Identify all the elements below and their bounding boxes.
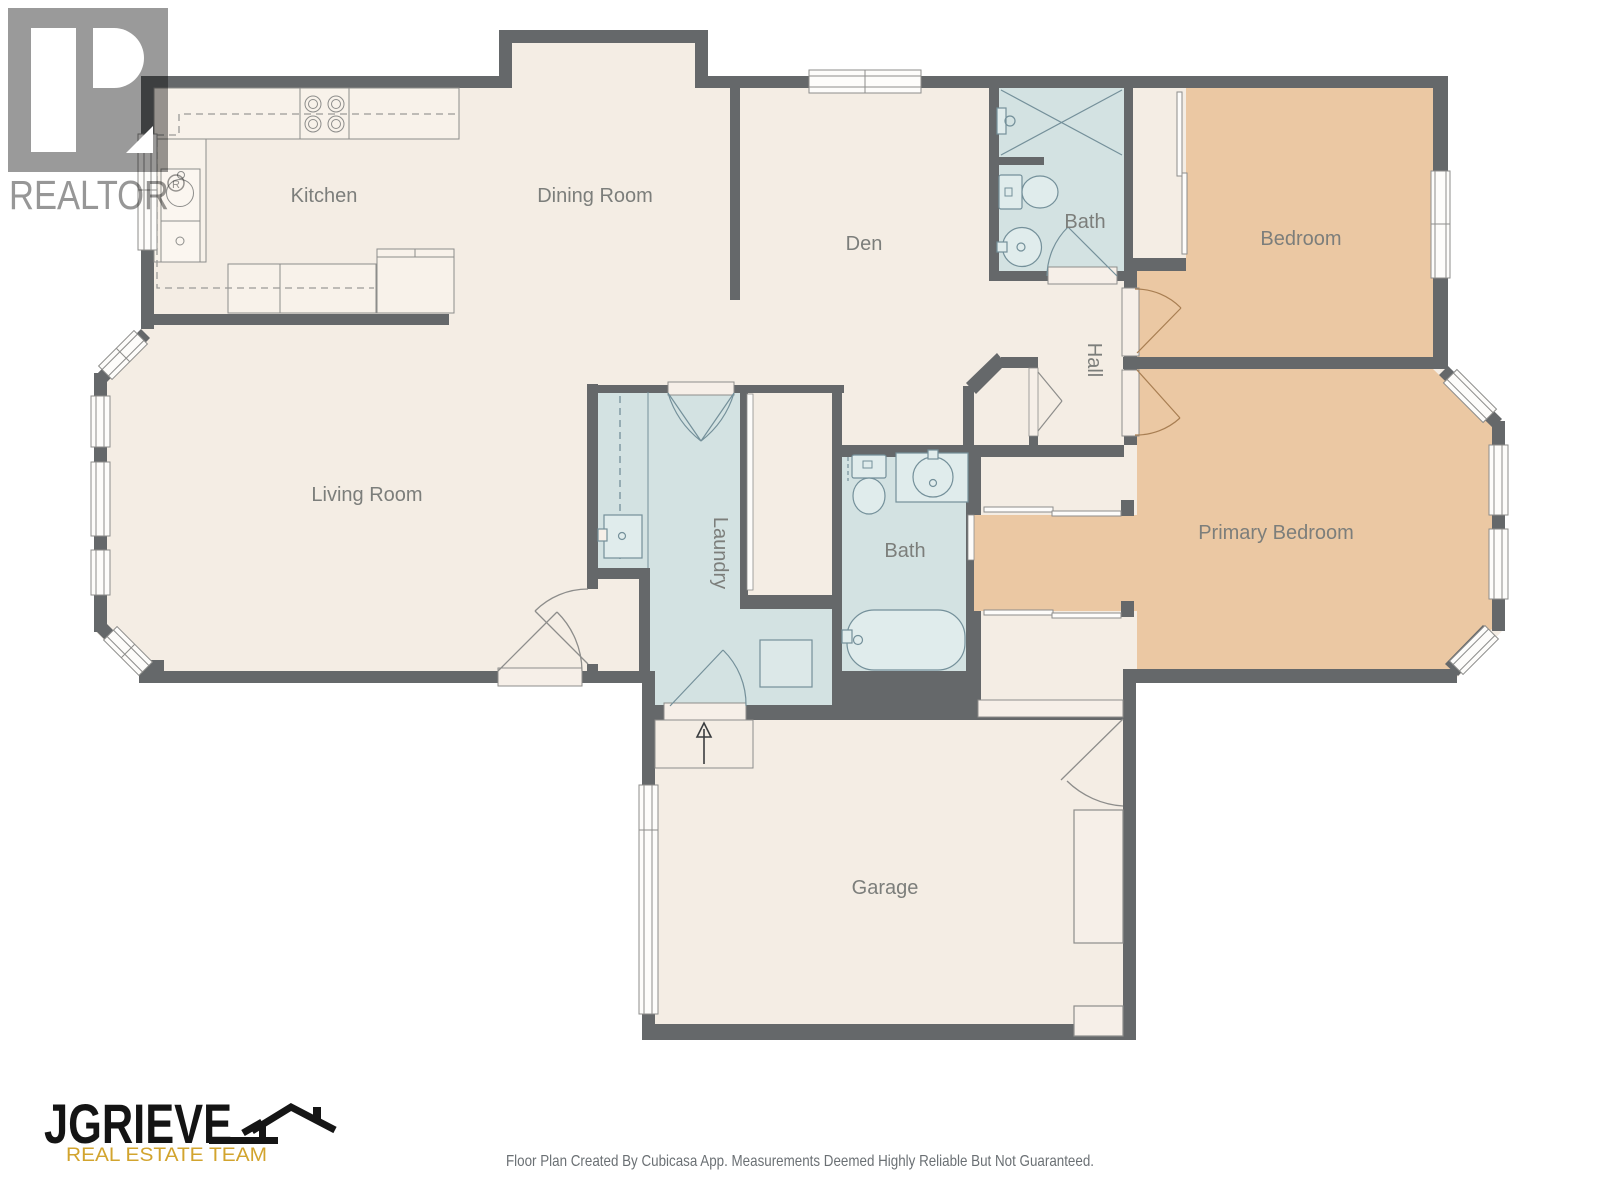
svg-text:Laundry: Laundry xyxy=(709,517,731,589)
svg-text:Den: Den xyxy=(846,233,883,255)
svg-text:REALTOR: REALTOR xyxy=(9,172,169,218)
svg-text:Living Room: Living Room xyxy=(311,484,422,506)
svg-text:Dining Room: Dining Room xyxy=(537,185,653,207)
svg-text:Bedroom: Bedroom xyxy=(1260,228,1341,250)
svg-text:Garage: Garage xyxy=(852,877,919,899)
svg-text:Hall: Hall xyxy=(1083,343,1105,377)
svg-text:Bath: Bath xyxy=(884,540,925,562)
svg-text:REAL ESTATE TEAM: REAL ESTATE TEAM xyxy=(66,1144,267,1166)
svg-text:Bath: Bath xyxy=(1064,211,1105,233)
svg-text:Floor Plan Created By Cubicasa: Floor Plan Created By Cubicasa App. Meas… xyxy=(506,1153,1094,1170)
svg-text:Kitchen: Kitchen xyxy=(291,185,358,207)
svg-text:Primary Bedroom: Primary Bedroom xyxy=(1198,522,1354,544)
svg-text:R: R xyxy=(172,179,180,191)
